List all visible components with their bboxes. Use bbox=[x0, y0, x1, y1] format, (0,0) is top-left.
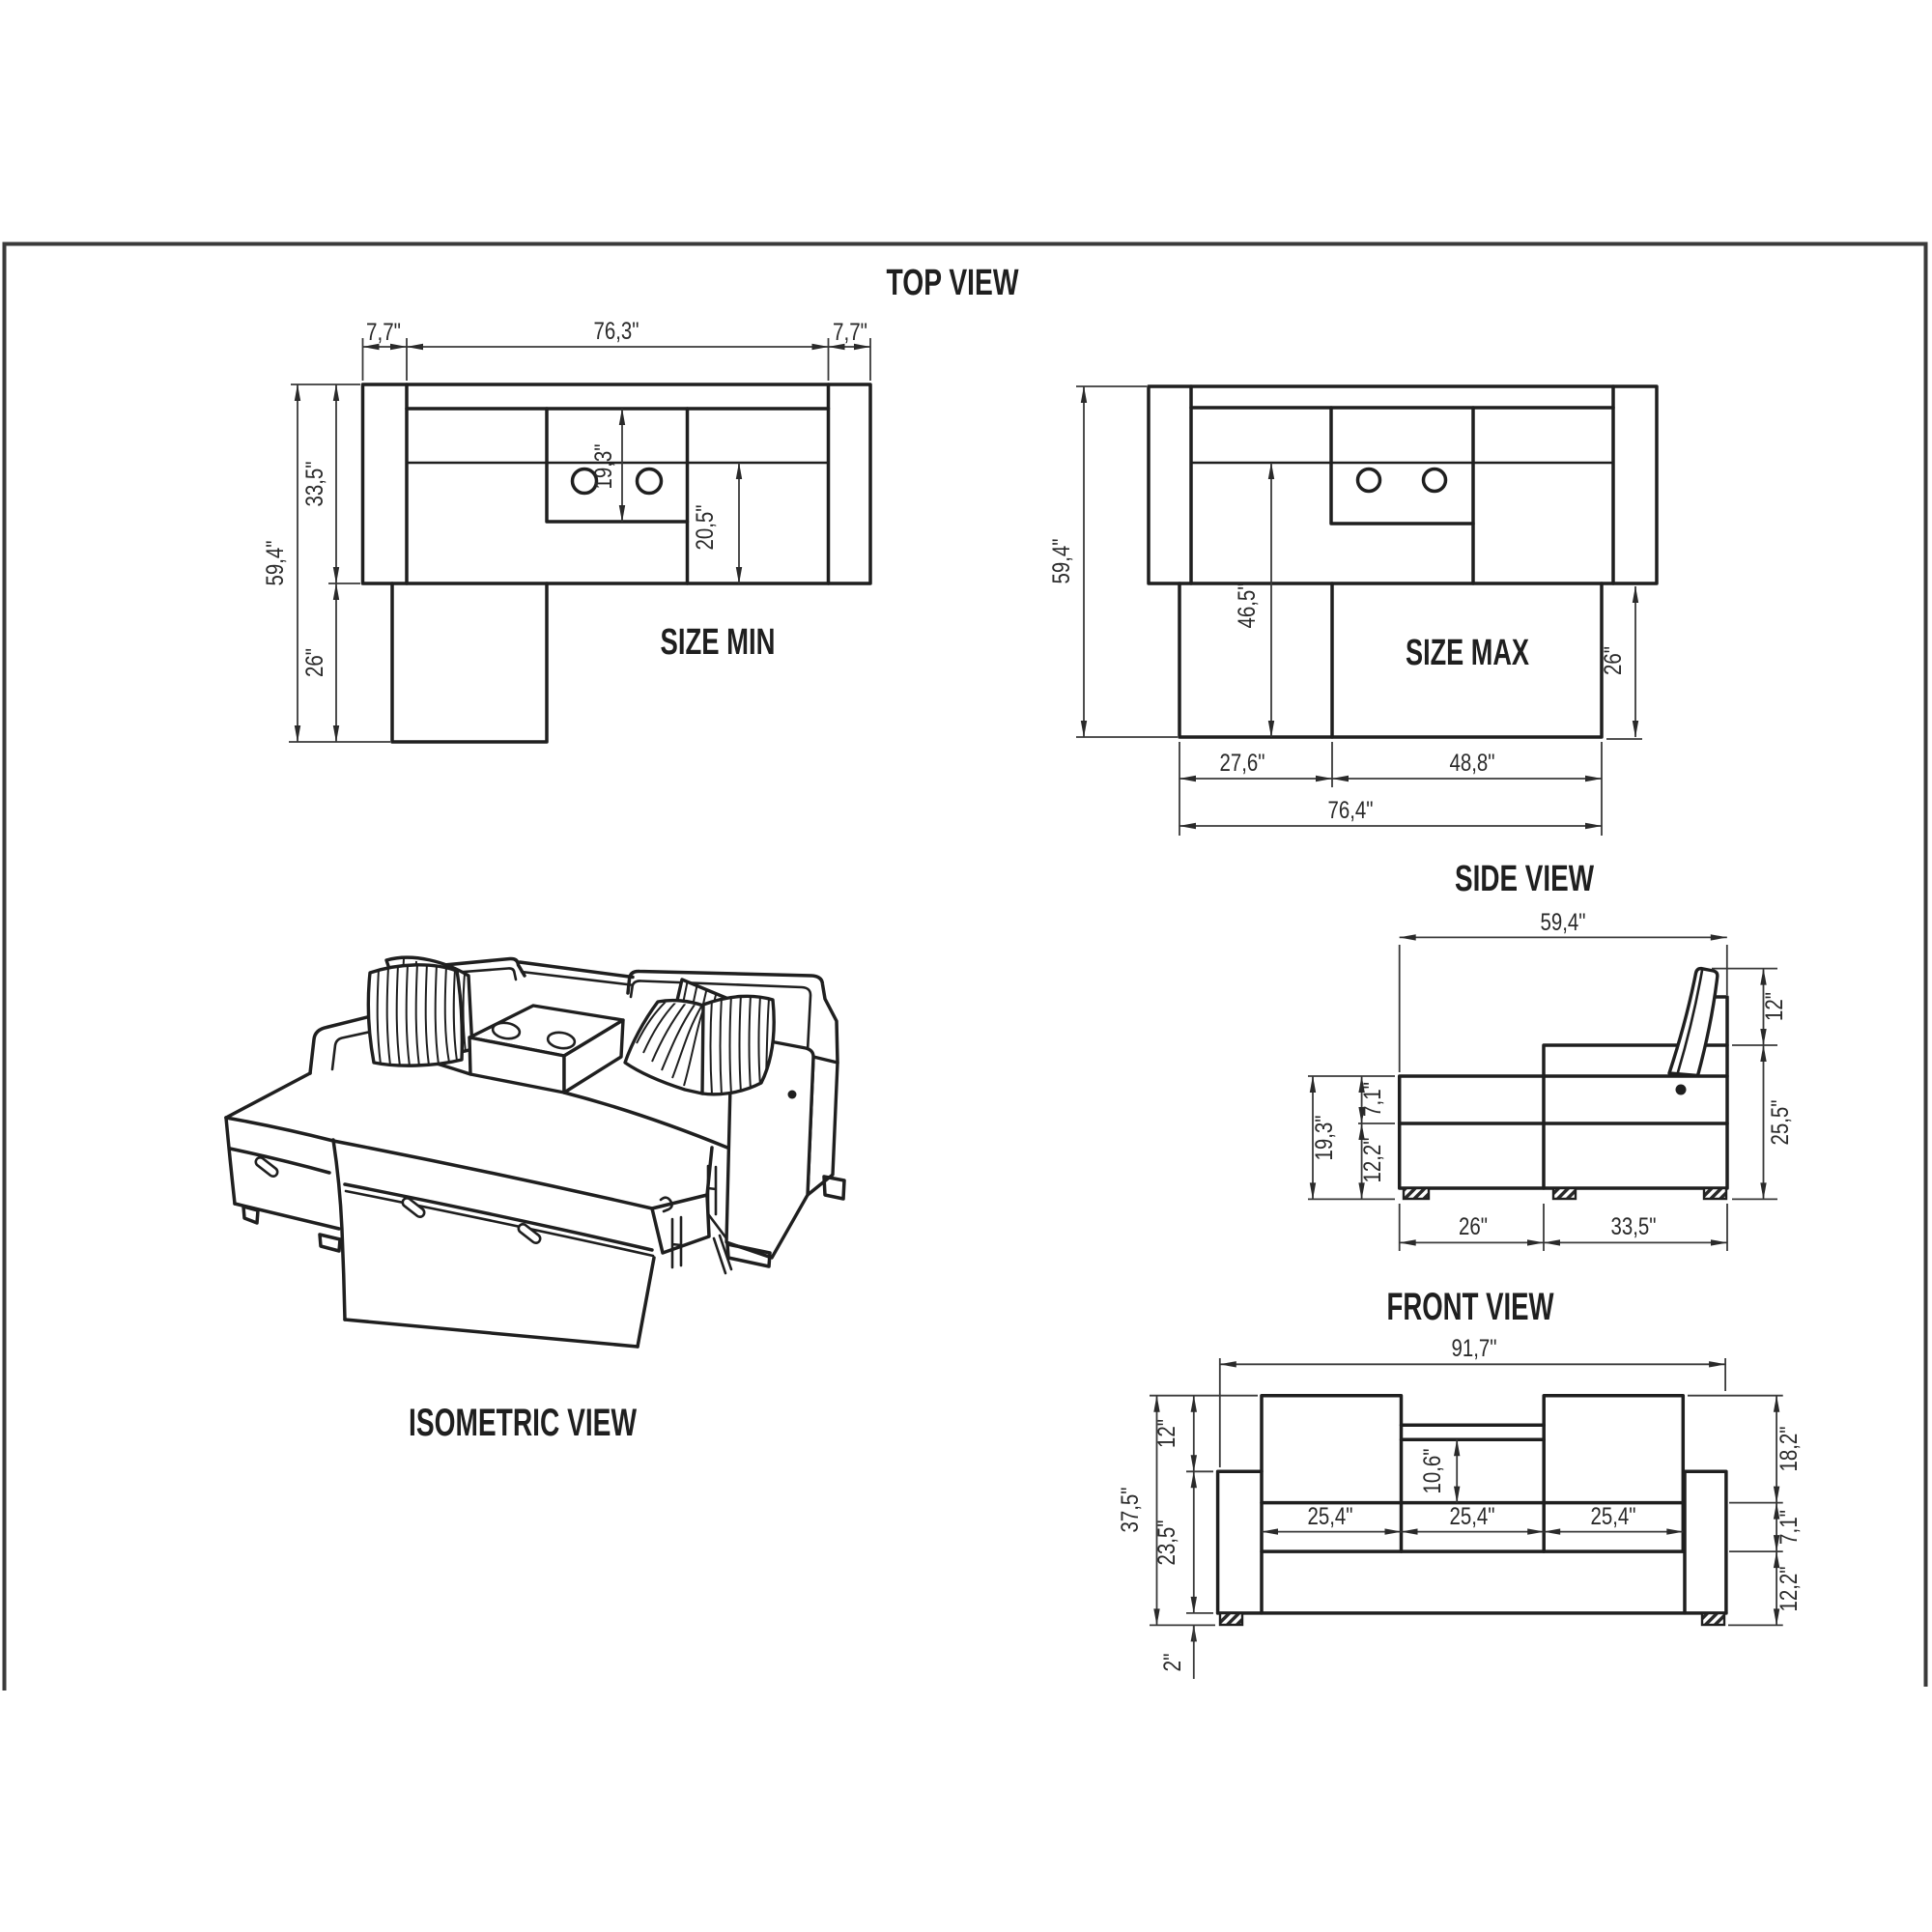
svg-text:7,1": 7,1" bbox=[1776, 1510, 1803, 1545]
svg-text:ISOMETRIC VIEW: ISOMETRIC VIEW bbox=[409, 1402, 637, 1444]
svg-text:59,4": 59,4" bbox=[1541, 909, 1586, 936]
svg-text:59,4": 59,4" bbox=[262, 541, 289, 586]
svg-text:7,1": 7,1" bbox=[1359, 1082, 1386, 1117]
svg-text:19,3": 19,3" bbox=[1311, 1116, 1338, 1161]
svg-text:48,8": 48,8" bbox=[1450, 750, 1495, 777]
svg-text:2": 2" bbox=[1159, 1654, 1186, 1672]
svg-text:27,6": 27,6" bbox=[1220, 750, 1265, 777]
svg-text:33,5": 33,5" bbox=[301, 462, 328, 507]
svg-text:25,4": 25,4" bbox=[1591, 1503, 1636, 1530]
svg-text:18,2": 18,2" bbox=[1776, 1427, 1803, 1472]
svg-text:91,7": 91,7" bbox=[1452, 1335, 1497, 1362]
svg-text:19,3": 19,3" bbox=[590, 444, 617, 490]
svg-text:10,6": 10,6" bbox=[1419, 1449, 1446, 1494]
svg-text:20,5": 20,5" bbox=[692, 505, 719, 551]
svg-text:SIZE MIN: SIZE MIN bbox=[661, 622, 776, 663]
svg-text:SIDE VIEW: SIDE VIEW bbox=[1455, 859, 1594, 899]
svg-text:TOP VIEW: TOP VIEW bbox=[887, 263, 1019, 303]
svg-text:26": 26" bbox=[301, 648, 328, 677]
svg-text:12,2": 12,2" bbox=[1776, 1567, 1803, 1612]
svg-text:12,2": 12,2" bbox=[1359, 1138, 1386, 1183]
svg-text:FRONT VIEW: FRONT VIEW bbox=[1387, 1286, 1554, 1328]
svg-text:25,4": 25,4" bbox=[1308, 1503, 1353, 1530]
svg-text:7,7": 7,7" bbox=[366, 319, 401, 346]
svg-text:37,5": 37,5" bbox=[1117, 1488, 1144, 1533]
svg-text:7,7": 7,7" bbox=[833, 319, 867, 346]
svg-text:46,5": 46,5" bbox=[1234, 583, 1261, 629]
svg-text:26": 26" bbox=[1459, 1213, 1488, 1240]
svg-text:12": 12" bbox=[1761, 992, 1788, 1021]
svg-text:23,5": 23,5" bbox=[1153, 1520, 1180, 1566]
svg-text:SIZE MAX: SIZE MAX bbox=[1406, 633, 1529, 673]
svg-text:26": 26" bbox=[1600, 646, 1627, 675]
svg-text:33,5": 33,5" bbox=[1611, 1213, 1657, 1240]
svg-text:25,5": 25,5" bbox=[1767, 1100, 1794, 1146]
svg-text:25,4": 25,4" bbox=[1450, 1503, 1495, 1530]
svg-text:59,4": 59,4" bbox=[1048, 539, 1075, 584]
svg-text:76,4": 76,4" bbox=[1328, 797, 1374, 824]
svg-text:76,3": 76,3" bbox=[594, 318, 639, 345]
